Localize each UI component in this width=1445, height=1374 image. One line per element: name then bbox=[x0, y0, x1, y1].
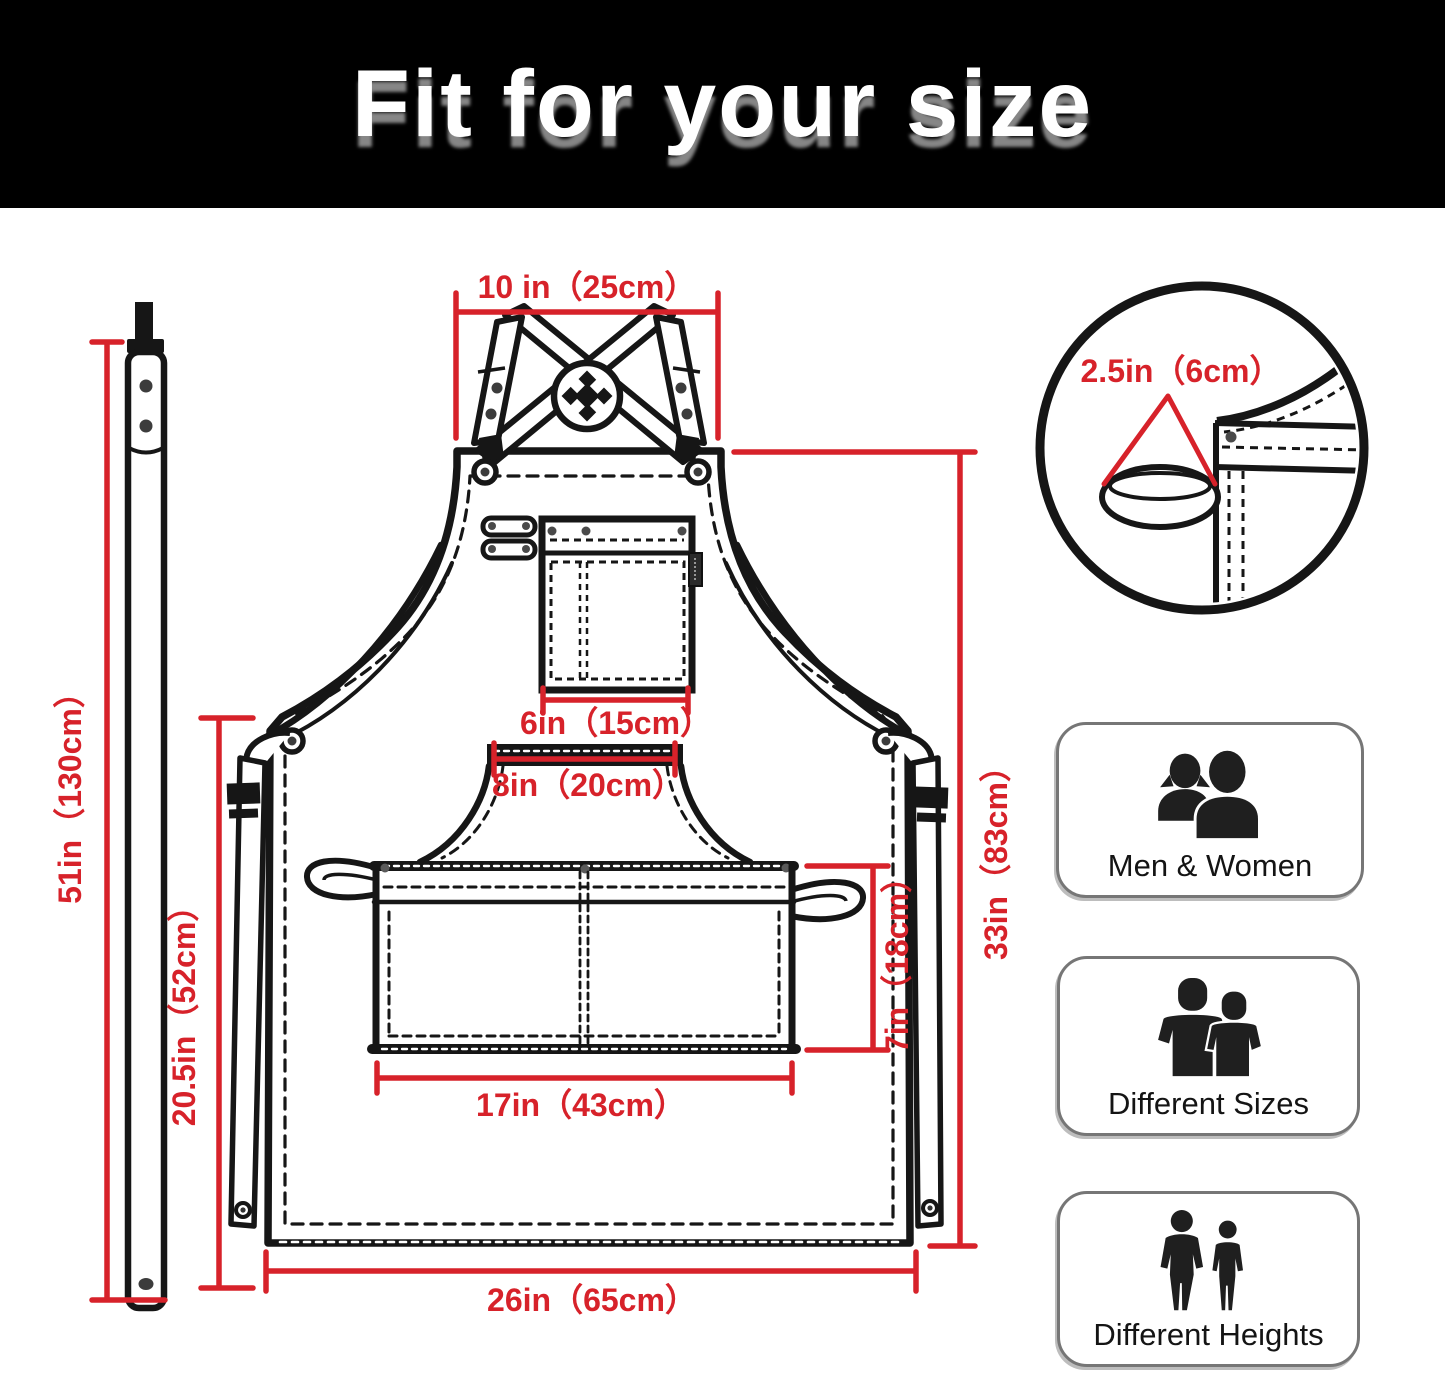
grommet-hole bbox=[694, 468, 703, 477]
tall-figure-body bbox=[1160, 1234, 1203, 1310]
loop-rivet bbox=[488, 545, 496, 553]
brand-tag bbox=[689, 553, 702, 586]
badge-different-heights: Different Heights bbox=[1057, 1191, 1360, 1367]
grommet-hole bbox=[481, 468, 490, 477]
loop-rivet bbox=[488, 522, 496, 530]
different-sizes-icon-svg bbox=[1147, 978, 1271, 1078]
strap-clip-left bbox=[479, 434, 504, 462]
different-heights-icon bbox=[1066, 1204, 1351, 1318]
badge-men-women: Men & Women bbox=[1056, 722, 1364, 898]
strap-tip bbox=[135, 302, 153, 342]
pocket-rivet bbox=[582, 527, 591, 536]
strap-rivet bbox=[139, 1278, 154, 1290]
tie-buckle-left bbox=[227, 782, 261, 804]
pocket-rivet bbox=[678, 527, 687, 536]
grommet-hole bbox=[882, 737, 891, 746]
pocket-rivet bbox=[548, 527, 557, 536]
hanger-rivet bbox=[676, 383, 687, 394]
man-head bbox=[1209, 751, 1245, 793]
tie-buckle-left-bar bbox=[229, 808, 258, 818]
woman-head bbox=[1170, 754, 1201, 789]
chest-pocket bbox=[542, 519, 702, 690]
loop-rivet bbox=[522, 545, 530, 553]
loop-detail-inner bbox=[1110, 473, 1210, 499]
hanging-strap bbox=[127, 302, 164, 1308]
hanger-rivet bbox=[486, 409, 497, 420]
detail-circle-outline bbox=[1040, 286, 1364, 610]
dim-strap-top-width: 10 in（25cm） bbox=[478, 269, 697, 305]
chest-pocket-outline bbox=[542, 519, 692, 690]
detail-band-top bbox=[1215, 423, 1370, 427]
strap-body bbox=[128, 352, 164, 1308]
detail-band-bottom bbox=[1215, 467, 1370, 471]
badge-different-sizes: Different Sizes bbox=[1057, 956, 1360, 1136]
figure-small-head bbox=[1221, 992, 1246, 1020]
different-sizes-icon bbox=[1066, 969, 1351, 1087]
dim-detail-loop-width: 2.5in（6cm） bbox=[1081, 353, 1282, 389]
dim-strap-length: 51in（130cm） bbox=[52, 676, 88, 904]
infographic-page: Fit for your size bbox=[0, 0, 1445, 1374]
strap-rivet bbox=[140, 380, 153, 393]
short-figure-body bbox=[1212, 1242, 1243, 1310]
hanger-rivet bbox=[492, 383, 503, 394]
short-figure-head bbox=[1218, 1221, 1236, 1239]
figure-small-body bbox=[1207, 1023, 1261, 1076]
tie-buckle-right bbox=[915, 786, 949, 808]
hanger-rivet bbox=[682, 409, 693, 420]
strap-clip-right bbox=[674, 434, 699, 462]
panel-top-hem bbox=[487, 744, 683, 766]
men-women-icon-svg bbox=[1146, 744, 1274, 840]
dim-body-width: 26in（65cm） bbox=[487, 1282, 697, 1318]
tall-figure-head bbox=[1170, 1210, 1192, 1232]
loop-rivet bbox=[522, 522, 530, 530]
detail-rivet bbox=[1226, 432, 1237, 443]
dim-body-height: 33in（83cm） bbox=[978, 750, 1014, 960]
tie-grommet-left-hole bbox=[240, 1207, 245, 1212]
waist-tie-right bbox=[913, 758, 941, 1226]
tie-grommet-right-hole bbox=[927, 1205, 932, 1210]
dim-waist-pocket-height: 7in（18cm） bbox=[879, 861, 915, 1053]
dim-waist-pocket-width: 17in（43cm） bbox=[476, 1087, 686, 1123]
man-shoulders bbox=[1197, 797, 1258, 838]
badge-label: Different Sizes bbox=[1108, 1087, 1309, 1121]
tie-buckle-right-bar bbox=[917, 813, 946, 823]
badge-label: Different Heights bbox=[1093, 1318, 1323, 1352]
waist-tie-left bbox=[231, 758, 265, 1226]
figure-large-head bbox=[1178, 978, 1207, 1011]
pocket-rivet bbox=[381, 864, 390, 873]
dim-chest-pocket-width: 6in（15cm） bbox=[520, 705, 712, 741]
detail-circle: 2.5in（6cm） bbox=[1040, 286, 1370, 616]
different-heights-icon-svg bbox=[1149, 1210, 1269, 1312]
badge-label: Men & Women bbox=[1108, 849, 1312, 883]
grommet-hole bbox=[288, 737, 297, 746]
men-women-icon bbox=[1065, 735, 1355, 849]
strap-rivet bbox=[140, 420, 153, 433]
dim-side-height: 20.5in（52cm） bbox=[166, 890, 202, 1127]
apron-size-diagram: 2.5in（6cm） 10 in（25cm） 6in（15cm） 8in（20c… bbox=[0, 0, 1445, 1374]
dim-waist-panel-top-width: 8in（20cm） bbox=[492, 767, 684, 803]
